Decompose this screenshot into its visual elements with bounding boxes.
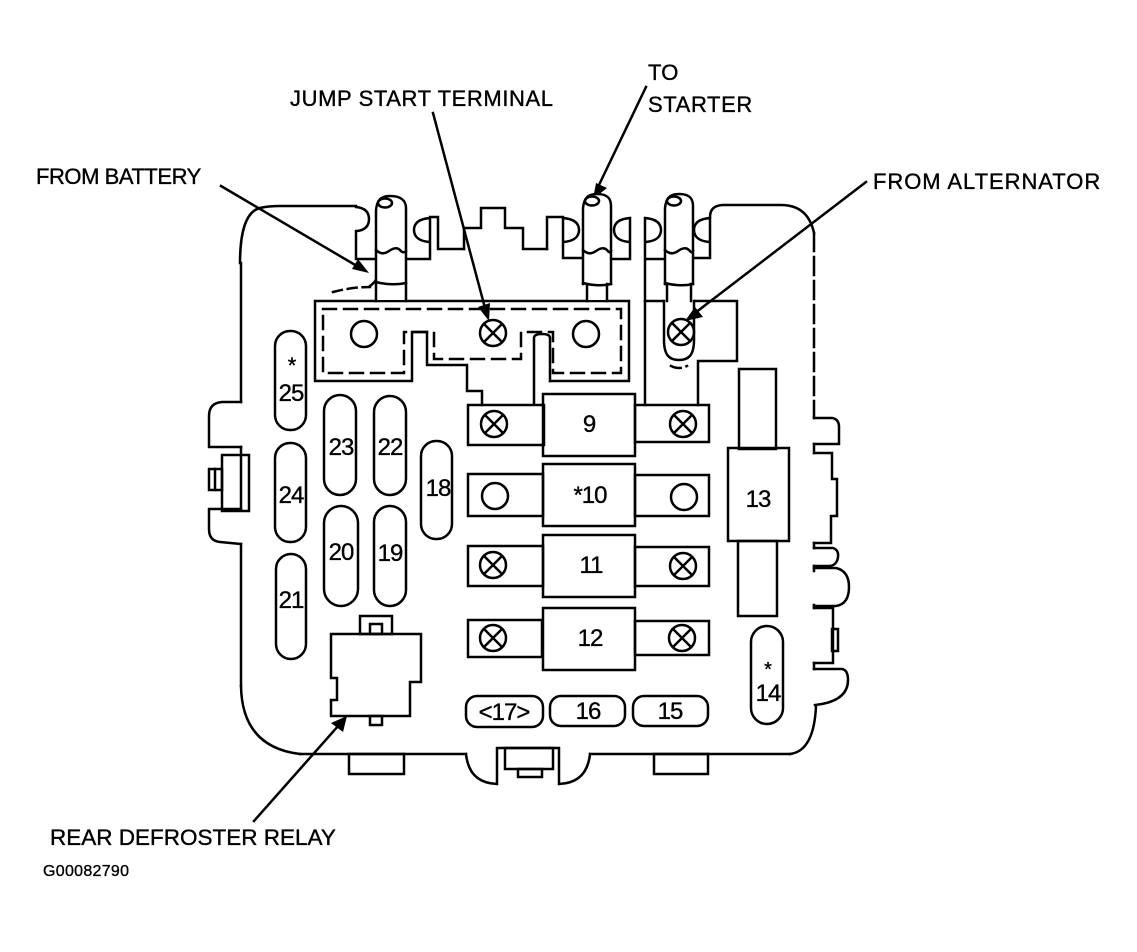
svg-text:24: 24 [279, 482, 304, 509]
svg-text:16: 16 [576, 698, 601, 725]
svg-text:21: 21 [279, 587, 304, 614]
svg-text:23: 23 [329, 434, 354, 461]
svg-text:*: * [288, 353, 297, 378]
svg-text:<17>: <17> [479, 699, 530, 726]
svg-text:22: 22 [378, 434, 403, 461]
svg-text:TO: TO [648, 60, 679, 85]
svg-text:JUMP START TERMINAL: JUMP START TERMINAL [290, 86, 554, 111]
svg-text:FROM BATTERY: FROM BATTERY [36, 164, 202, 189]
svg-text:STARTER: STARTER [648, 92, 753, 117]
svg-text:*: * [764, 659, 772, 681]
svg-text:FROM ALTERNATOR: FROM ALTERNATOR [873, 169, 1101, 194]
svg-text:20: 20 [329, 539, 354, 566]
svg-text:15: 15 [658, 698, 683, 725]
svg-text:18: 18 [426, 475, 451, 502]
svg-text:*10: *10 [573, 482, 607, 509]
svg-text:14: 14 [756, 680, 781, 707]
svg-text:REAR DEFROSTER RELAY: REAR DEFROSTER RELAY [50, 825, 336, 850]
svg-text:19: 19 [378, 540, 403, 567]
svg-text:9: 9 [583, 411, 596, 438]
svg-text:11: 11 [580, 552, 604, 579]
svg-text:13: 13 [746, 486, 771, 513]
svg-text:G00082790: G00082790 [43, 863, 129, 880]
svg-text:12: 12 [578, 625, 603, 652]
svg-text:25: 25 [279, 380, 304, 407]
